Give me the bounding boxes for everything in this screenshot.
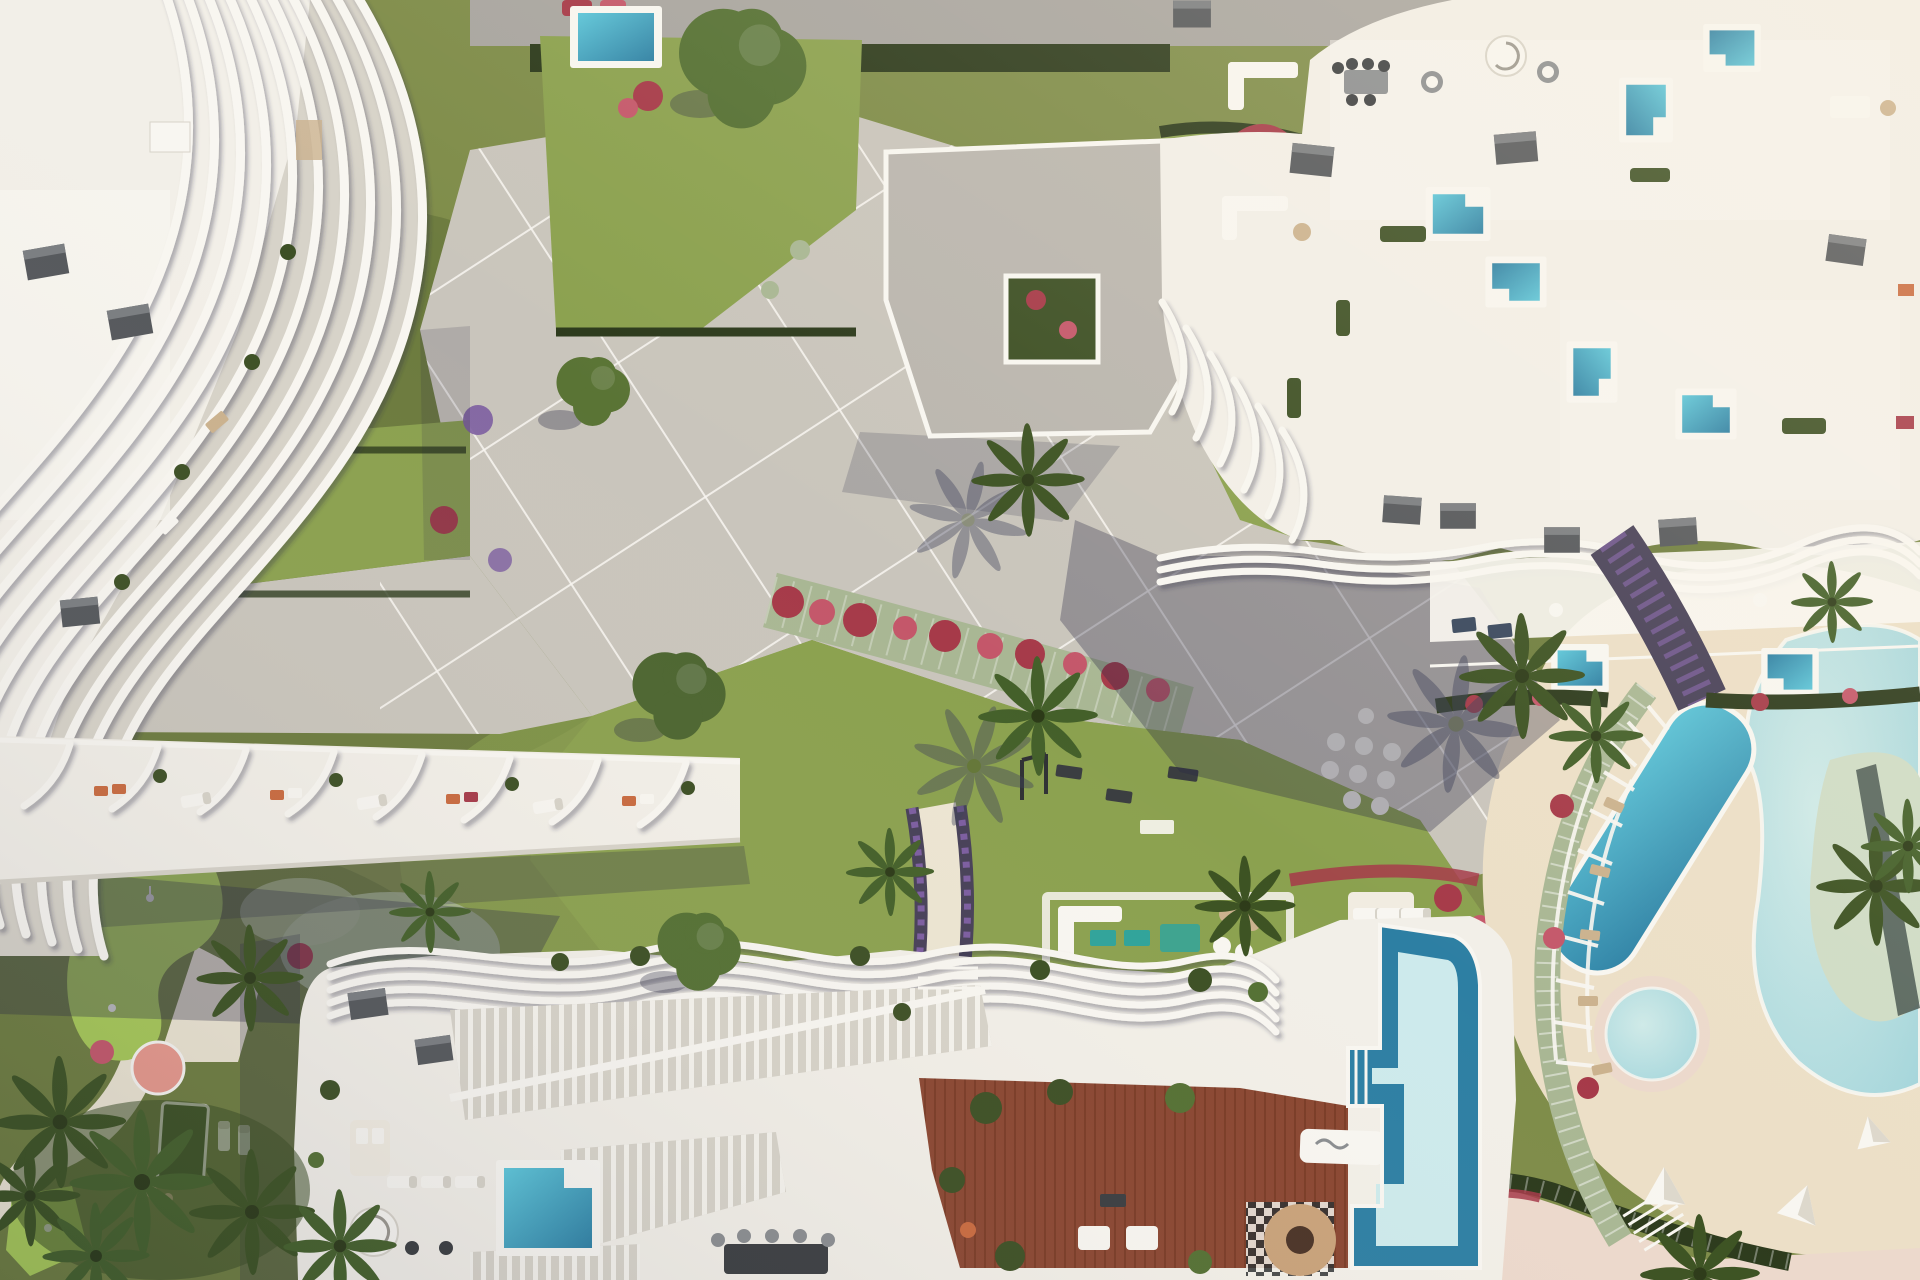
- aerial-render-stage: Aerial masterplan render: [0, 0, 1920, 1280]
- light-wash: [0, 0, 1920, 1280]
- aerial-render: Aerial masterplan render: [0, 0, 1920, 1280]
